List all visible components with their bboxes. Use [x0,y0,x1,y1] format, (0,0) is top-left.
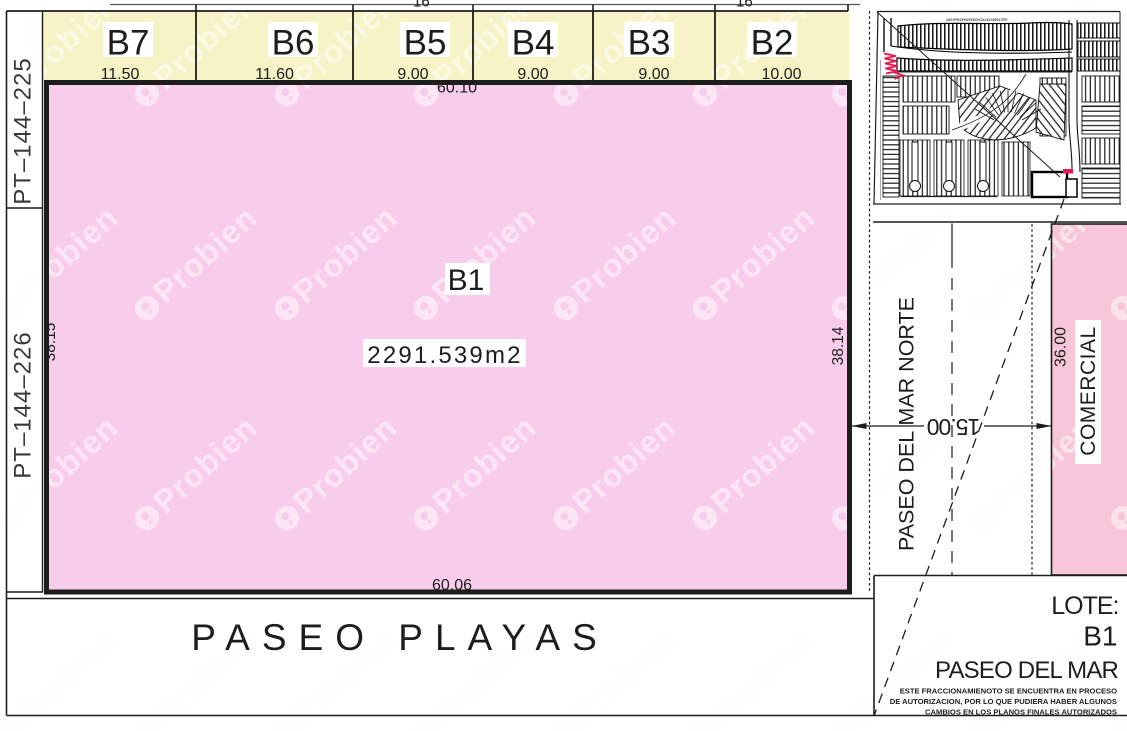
svg-text:B3: B3 [628,24,671,63]
svg-text:16: 16 [413,0,430,11]
svg-text:LOTE:: LOTE: [1051,592,1118,620]
svg-text:38.15: 38.15 [42,323,59,362]
svg-text:9.00: 9.00 [638,66,669,83]
svg-text:9.00: 9.00 [517,66,548,83]
svg-text:B1: B1 [448,264,485,297]
svg-text:38.14: 38.14 [830,326,847,365]
svg-text:B6: B6 [272,24,315,63]
svg-text:PT–144–226: PT–144–226 [10,331,37,478]
svg-text:PASEO DEL MAR NORTE: PASEO DEL MAR NORTE [895,297,919,551]
svg-text:11.50: 11.50 [101,66,140,83]
svg-text:AVEN PRINCIPAL RESIDENCIAL DEL: AVEN PRINCIPAL RESIDENCIAL DEL MAR NORTE [946,17,1008,22]
svg-text:2291.539m2: 2291.539m2 [367,342,522,369]
svg-text:PT–144–225: PT–144–225 [10,57,37,204]
svg-text:36.00: 36.00 [1053,327,1070,367]
svg-text:PASEO DEL MAR: PASEO DEL MAR [935,657,1118,684]
svg-text:DE AUTORIZACION, POR LO QUE PU: DE AUTORIZACION, POR LO QUE PUDIERA HABE… [890,697,1117,706]
svg-text:CAMBIOS EN LOS PLANOS FINALES: CAMBIOS EN LOS PLANOS FINALES AUTORIZADO… [925,708,1117,717]
svg-text:60.10: 60.10 [437,80,477,97]
svg-text:16: 16 [736,0,753,11]
svg-text:B4: B4 [512,24,555,63]
svg-text:ESTE FRACCIONAMIENOTO SE ENCUE: ESTE FRACCIONAMIENOTO SE ENCUENTRA EN PR… [900,687,1117,696]
svg-text:PASEO PLAYAS: PASEO PLAYAS [191,617,609,658]
svg-text:10.00: 10.00 [761,66,801,83]
svg-text:11.60: 11.60 [255,66,294,83]
svg-text:B1: B1 [1083,621,1117,652]
svg-text:COMERCIAL: COMERCIAL [1077,326,1100,455]
svg-text:B5: B5 [404,24,447,63]
svg-text:15.00: 15.00 [928,414,981,440]
svg-text:B7: B7 [107,24,150,63]
svg-text:9.00: 9.00 [397,66,428,83]
svg-text:B2: B2 [751,24,794,63]
svg-text:60.06: 60.06 [432,577,472,594]
